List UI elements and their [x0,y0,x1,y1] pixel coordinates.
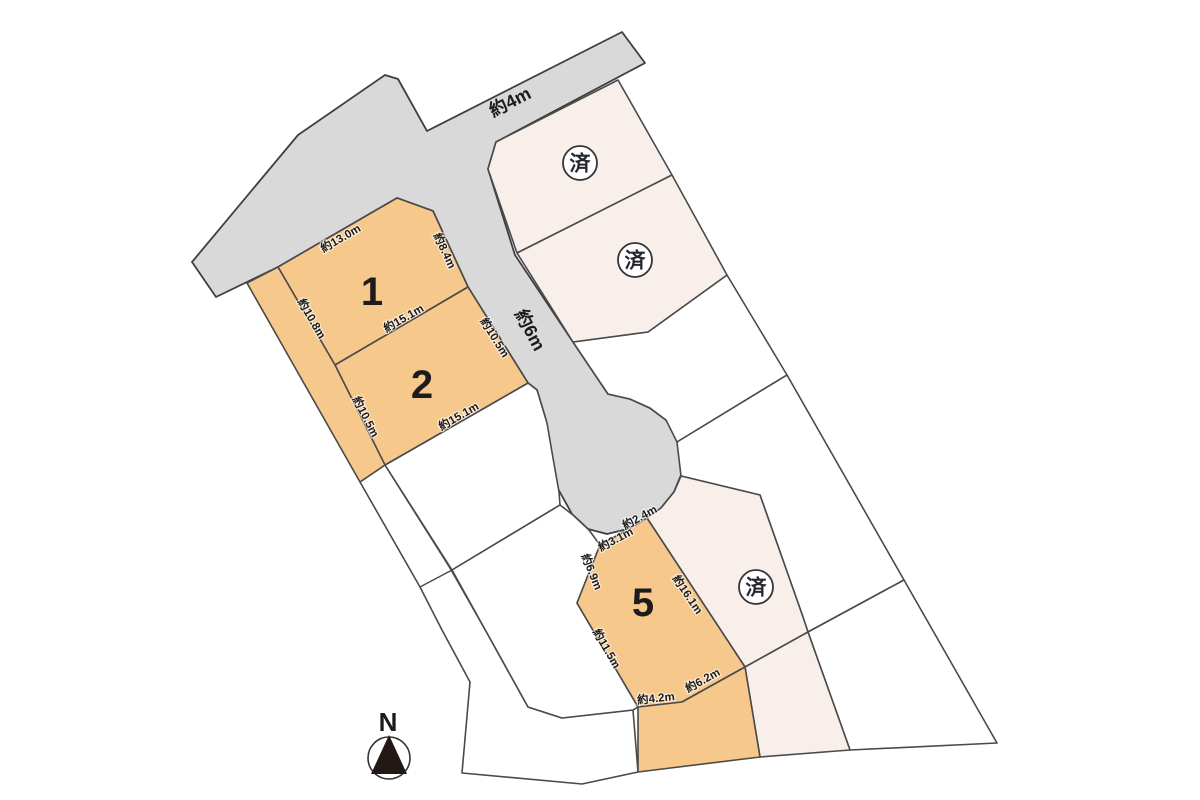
sold-mark-north: 済 [570,152,592,176]
sold-mark-south: 済 [746,576,768,600]
plot-5-number: 5 [632,581,654,625]
sold-mark-middle: 済 [625,249,647,273]
plot-2-number: 2 [411,363,433,407]
plot-map-canvas: 約4m 約6m 1 2 5 約13.0m 約8.4m 約15.1m 約10.8m… [0,0,1200,800]
compass-group: N [368,707,410,779]
plot-1-number: 1 [361,270,383,314]
land-plot-map: 約4m 約6m 1 2 5 約13.0m 約8.4m 約15.1m 約10.8m… [0,0,1200,800]
compass-north-label: N [379,707,398,737]
